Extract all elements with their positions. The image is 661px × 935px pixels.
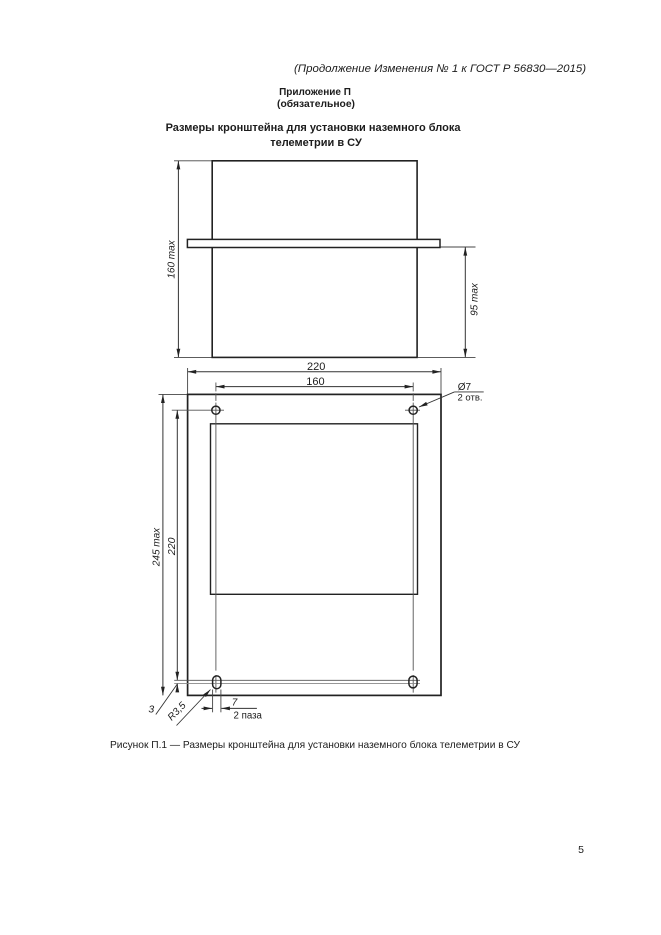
- svg-text:220: 220: [307, 361, 325, 373]
- svg-text:3: 3: [148, 703, 154, 715]
- svg-text:R3,5: R3,5: [166, 700, 189, 723]
- svg-text:95 max: 95 max: [470, 282, 481, 316]
- svg-text:160 max: 160 max: [166, 239, 177, 278]
- svg-text:245 max: 245 max: [152, 527, 163, 567]
- svg-text:2 отв.: 2 отв.: [458, 393, 483, 404]
- svg-text:2 паза: 2 паза: [234, 711, 263, 722]
- svg-text:220: 220: [166, 537, 178, 556]
- svg-text:7: 7: [232, 698, 238, 709]
- svg-text:160: 160: [306, 376, 324, 388]
